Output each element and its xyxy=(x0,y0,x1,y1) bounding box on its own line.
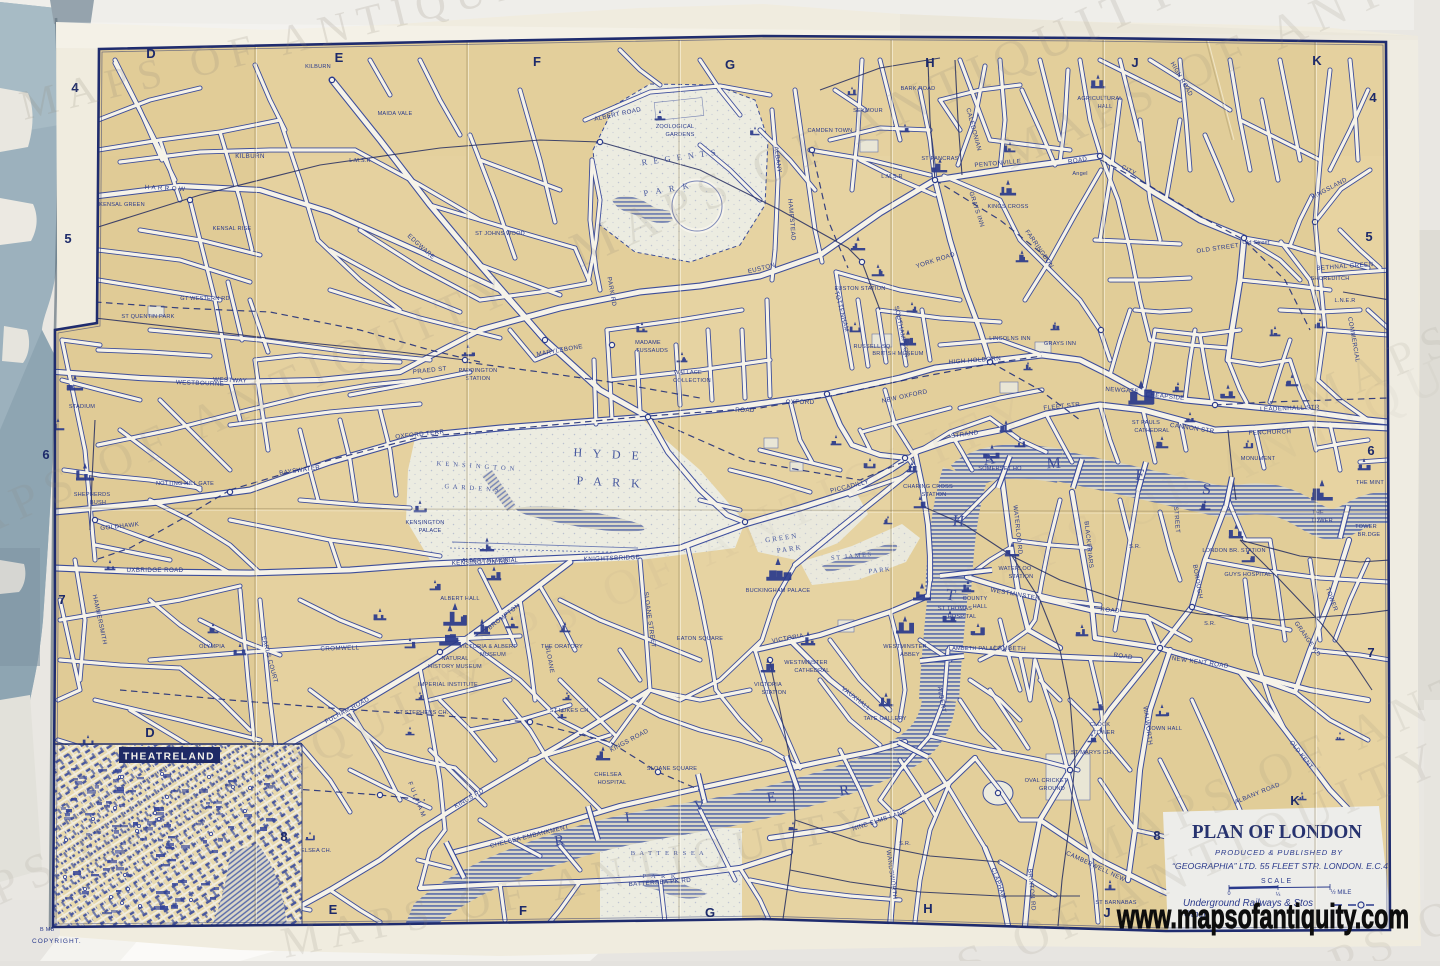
svg-text:OVAL CRICKET: OVAL CRICKET xyxy=(1025,778,1068,784)
svg-text:GRAYS INN: GRAYS INN xyxy=(1044,341,1076,347)
svg-text:GUYS HOSPITAL: GUYS HOSPITAL xyxy=(1224,572,1271,578)
svg-text:CATHEDRAL: CATHEDRAL xyxy=(794,668,829,674)
svg-text:STATION: STATION xyxy=(466,376,491,382)
svg-text:www.mapsofantiquity.com: www.mapsofantiquity.com xyxy=(1116,898,1409,936)
svg-text:0: 0 xyxy=(1227,891,1230,897)
svg-text:ST PANCRAS: ST PANCRAS xyxy=(921,156,958,162)
svg-text:SLOANE SQUARE: SLOANE SQUARE xyxy=(647,766,698,772)
svg-text:STATION: STATION xyxy=(762,690,787,696)
svg-text:NOTTING HILL GATE: NOTTING HILL GATE xyxy=(156,481,214,487)
svg-text:M: M xyxy=(1046,455,1061,473)
svg-text:WALLACE: WALLACE xyxy=(674,370,702,376)
svg-text:BRITISH MUSEUM: BRITISH MUSEUM xyxy=(872,351,923,357)
svg-text:D: D xyxy=(145,725,154,740)
svg-text:CROMWELL: CROMWELL xyxy=(320,644,359,652)
svg-text:H: H xyxy=(952,512,966,530)
svg-text:GT WESTERN RD: GT WESTERN RD xyxy=(180,296,229,302)
svg-text:Old Street: Old Street xyxy=(1242,240,1269,246)
svg-text:4: 4 xyxy=(1369,90,1377,105)
svg-text:ST JOHNS WOOD: ST JOHNS WOOD xyxy=(475,231,525,237)
svg-text:MADAME: MADAME xyxy=(635,340,661,346)
svg-text:THE: THE xyxy=(1312,510,1324,516)
svg-text:KENSINGTON: KENSINGTON xyxy=(406,520,445,526)
svg-text:KENSAL RISE: KENSAL RISE xyxy=(213,226,252,232)
svg-text:½ MILE: ½ MILE xyxy=(1331,889,1352,896)
svg-text:ALBERT HALL: ALBERT HALL xyxy=(440,596,479,602)
svg-text:LINCOLNS INN: LINCOLNS INN xyxy=(989,336,1031,342)
svg-text:S.R.: S.R. xyxy=(1204,621,1216,627)
svg-text:ALBERT MEMORIAL: ALBERT MEMORIAL xyxy=(462,558,518,564)
svg-text:CATHEDRAL: CATHEDRAL xyxy=(1134,428,1169,434)
svg-text:B MB: B MB xyxy=(40,927,55,933)
svg-text:MAIDA VALE: MAIDA VALE xyxy=(378,111,413,117)
svg-text:S.R.: S.R. xyxy=(899,841,911,847)
svg-text:WESTMINSTER: WESTMINSTER xyxy=(883,644,927,650)
svg-text:BUCKINGHAM PALACE: BUCKINGHAM PALACE xyxy=(746,588,811,594)
svg-text:6: 6 xyxy=(1367,443,1374,458)
svg-text:L.M.S.R: L.M.S.R xyxy=(349,158,371,164)
svg-text:ST PAULS: ST PAULS xyxy=(1132,420,1160,426)
svg-text:EATON SQUARE: EATON SQUARE xyxy=(677,636,723,642)
svg-text:K: K xyxy=(1312,53,1322,68)
svg-text:5: 5 xyxy=(64,231,71,246)
svg-text:SCALE: SCALE xyxy=(1261,876,1293,885)
svg-text:KILBURN: KILBURN xyxy=(305,64,331,70)
svg-text:THE MINT: THE MINT xyxy=(1356,480,1384,486)
svg-text:TOWN HALL: TOWN HALL xyxy=(1148,726,1182,732)
svg-text:H: H xyxy=(923,901,932,916)
svg-text:ST QUENTIN PARK: ST QUENTIN PARK xyxy=(121,314,174,320)
svg-text:BUSH: BUSH xyxy=(90,500,106,506)
svg-text:WESTMINSTER: WESTMINSTER xyxy=(784,660,828,666)
svg-text:KENSAL GREEN: KENSAL GREEN xyxy=(99,202,145,208)
svg-text:L.N.E.R: L.N.E.R xyxy=(1335,298,1356,304)
svg-text:TATE GALLERY: TATE GALLERY xyxy=(863,716,906,722)
svg-text:COPYRIGHT.: COPYRIGHT. xyxy=(32,938,82,945)
svg-text:LAMBETH PALACE: LAMBETH PALACE xyxy=(949,646,1002,652)
svg-text:BR.DGE: BR.DGE xyxy=(1358,532,1381,538)
svg-text:TOWER: TOWER xyxy=(1355,524,1377,530)
svg-text:ZOOLOGICAL: ZOOLOGICAL xyxy=(656,124,694,130)
svg-text:CHELSEA: CHELSEA xyxy=(594,772,622,778)
svg-text:7: 7 xyxy=(1367,645,1374,660)
svg-text:ST MARYS CH.: ST MARYS CH. xyxy=(1071,750,1113,756)
svg-text:G: G xyxy=(705,905,715,920)
svg-text:STADIUM: STADIUM xyxy=(69,404,95,410)
svg-text:SOMERSET HO: SOMERSET HO xyxy=(978,466,1022,472)
svg-text:EUSTON STATION: EUSTON STATION xyxy=(835,286,886,292)
svg-text:CLOCK: CLOCK xyxy=(1090,722,1110,728)
svg-text:STATION: STATION xyxy=(922,492,947,498)
svg-text:PADDINGTON: PADDINGTON xyxy=(459,368,498,374)
svg-text:OXFORD: OXFORD xyxy=(786,399,815,406)
svg-text:HOSPITAL: HOSPITAL xyxy=(598,780,627,786)
svg-text:5: 5 xyxy=(1365,229,1372,244)
svg-text:UXBRIDGE ROAD: UXBRIDGE ROAD xyxy=(126,567,183,574)
svg-text:ABBEY: ABBEY xyxy=(900,652,920,658)
svg-text:LONDON BR. STATION: LONDON BR. STATION xyxy=(1202,548,1265,554)
svg-text:Angel: Angel xyxy=(1072,171,1087,177)
svg-text:RUSSELL SQ: RUSSELL SQ xyxy=(854,344,891,350)
svg-text:8: 8 xyxy=(280,829,287,844)
svg-text:OLYMPIA: OLYMPIA xyxy=(199,644,225,650)
svg-text:F: F xyxy=(533,54,541,69)
svg-text:ROAD: ROAD xyxy=(735,407,755,414)
svg-text:KINGS CROSS: KINGS CROSS xyxy=(987,204,1028,210)
svg-text:KILBURN: KILBURN xyxy=(235,153,265,160)
svg-text:VICTORIA: VICTORIA xyxy=(754,682,782,688)
svg-text:ST LUKES CH.: ST LUKES CH. xyxy=(550,708,591,714)
svg-text:S.R.: S.R. xyxy=(1129,544,1141,550)
svg-text:G: G xyxy=(725,57,735,72)
svg-text:6: 6 xyxy=(42,447,49,462)
svg-text:TUSSAUDS: TUSSAUDS xyxy=(636,348,668,354)
svg-text:THEATRELAND: THEATRELAND xyxy=(123,751,215,763)
svg-text:PALACE: PALACE xyxy=(419,528,442,534)
svg-text:GROUND: GROUND xyxy=(1039,786,1065,792)
svg-text:7: 7 xyxy=(58,592,65,607)
